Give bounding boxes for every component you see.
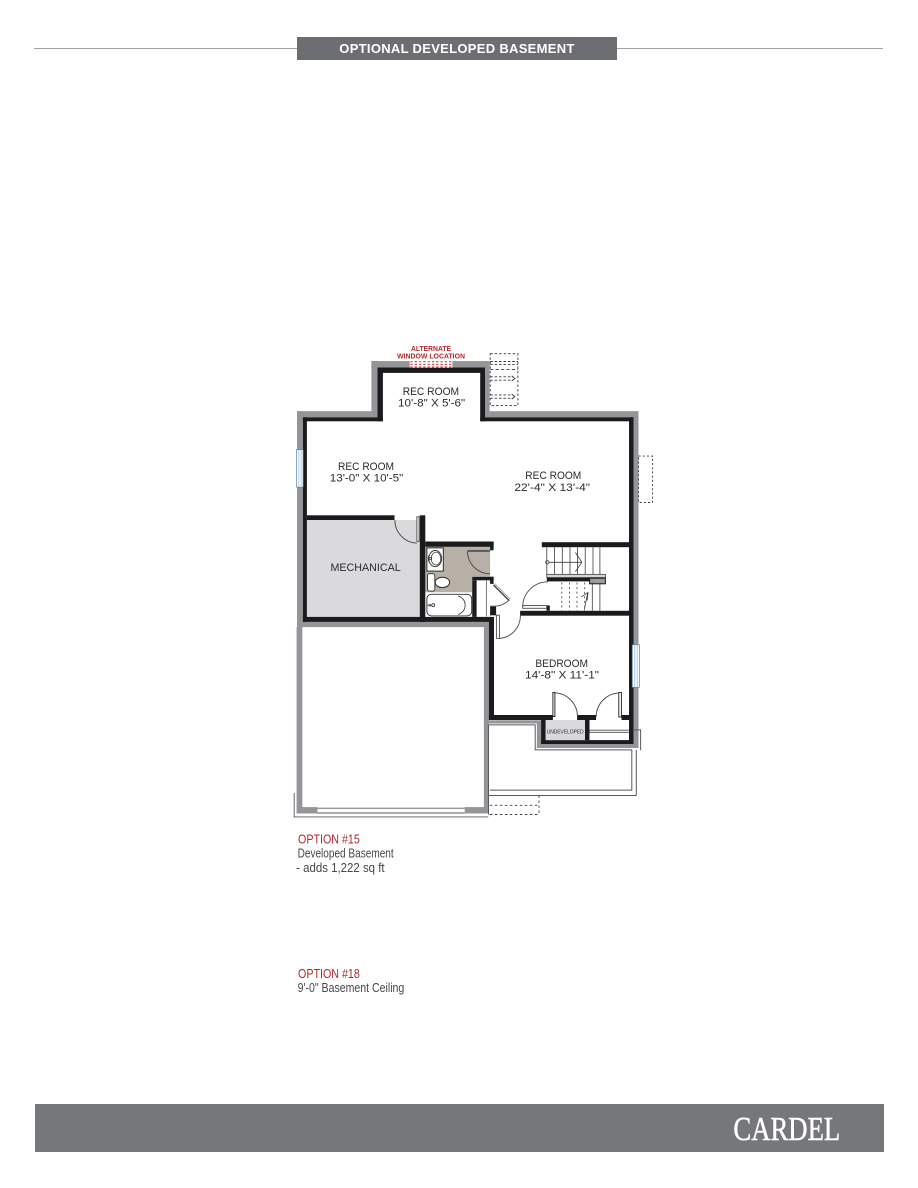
svg-text:Developed Basement: Developed Basement [298,846,394,861]
svg-text:CARDEL: CARDEL [733,1111,840,1148]
svg-text:OPTION #18: OPTION #18 [298,966,360,981]
svg-text:REC ROOM: REC ROOM [338,461,394,473]
svg-text:10'-8" X 5'-6": 10'-8" X 5'-6" [398,398,465,410]
svg-text:ALTERNATE: ALTERNATE [411,346,451,353]
svg-text:22'-4" X 13'-4": 22'-4" X 13'-4" [514,482,590,494]
svg-text:13'-0" X 10'-5": 13'-0" X 10'-5" [330,473,404,485]
svg-text:REC ROOM: REC ROOM [403,386,459,398]
svg-text:- adds 1,222 sq ft: - adds 1,222 sq ft [296,860,385,875]
svg-text:MECHANICAL: MECHANICAL [330,562,400,574]
svg-text:WINDOW LOCATION: WINDOW LOCATION [397,353,465,360]
svg-text:9'-0" Basement Ceiling: 9'-0" Basement Ceiling [298,980,405,995]
svg-text:14'-8" X 11'-1": 14'-8" X 11'-1" [525,669,599,681]
svg-text:OPTION #15: OPTION #15 [298,832,360,847]
svg-text:UNDEVELOPED: UNDEVELOPED [547,730,584,736]
svg-text:REC ROOM: REC ROOM [525,470,581,482]
